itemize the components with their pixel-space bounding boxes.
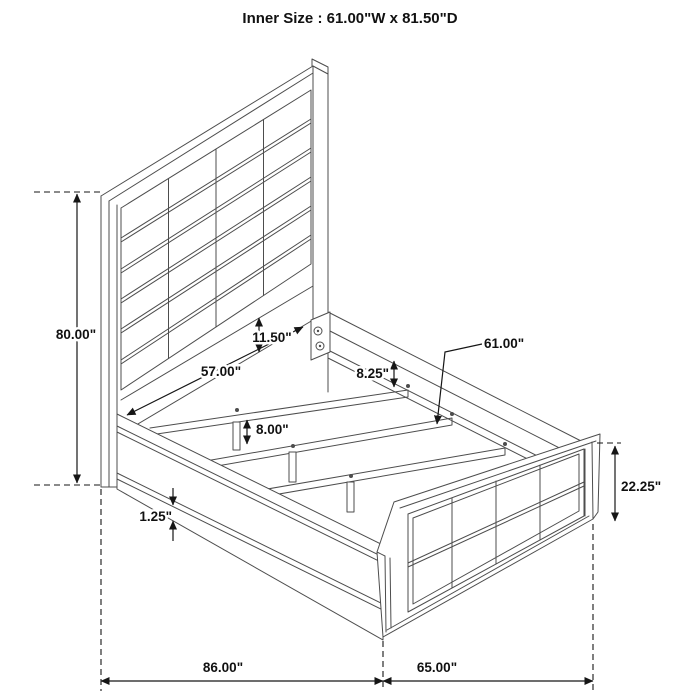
dim-headboard-height-label: 80.00" bbox=[56, 327, 96, 342]
dim-overall-width-label: 65.00" bbox=[417, 660, 457, 675]
screw-dot bbox=[503, 442, 507, 446]
dim-leg-height-label: 8.00" bbox=[256, 422, 289, 437]
screw-dot bbox=[450, 412, 454, 416]
screw-dot bbox=[291, 444, 295, 448]
headboard-left-post bbox=[101, 196, 117, 487]
dim-headboard-width-label: 57.00" bbox=[201, 364, 241, 379]
bed-dimension-diagram: 80.00" 57.00" 11.50" 8.25" 61.00" 8.00" … bbox=[0, 0, 700, 700]
dim-slat-length-label: 61.00" bbox=[484, 336, 524, 351]
bracket-hole-center bbox=[317, 330, 319, 332]
slat-leg-2 bbox=[289, 452, 296, 482]
dim-head-rail-label: 11.50" bbox=[252, 330, 291, 345]
screw-dot bbox=[406, 384, 410, 388]
mounting-bracket bbox=[311, 312, 330, 360]
bed-dimension-diagram-page: 80.00" 57.00" 11.50" 8.25" 61.00" 8.00" … bbox=[0, 0, 700, 700]
near-side-rail bbox=[117, 414, 383, 640]
dim-rail-drop-label: 8.25" bbox=[356, 366, 389, 381]
dim-overall-depth-label: 86.00" bbox=[203, 660, 243, 675]
screw-dot bbox=[349, 474, 353, 478]
dim-footboard-height-label: 22.25" bbox=[621, 479, 661, 494]
slat-leg-1 bbox=[233, 422, 240, 450]
diagram-title: Inner Size : 61.00"W x 81.50"D bbox=[242, 10, 457, 27]
screw-dot bbox=[235, 408, 239, 412]
bracket-hole-center bbox=[319, 345, 321, 347]
dim-trim-label: 1.25" bbox=[139, 509, 172, 524]
slat-leg-3 bbox=[347, 482, 354, 512]
far-side-rail bbox=[328, 312, 585, 461]
near-rail-face bbox=[117, 414, 383, 640]
